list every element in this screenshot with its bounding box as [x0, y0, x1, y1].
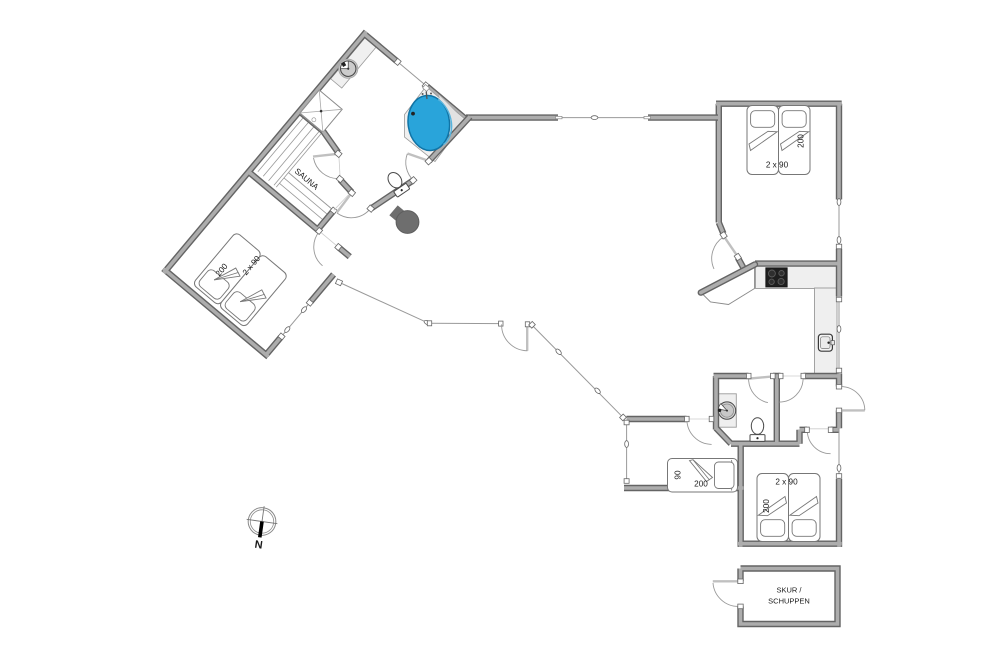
- svg-text:2 x 90: 2 x 90: [766, 161, 789, 170]
- svg-text:200: 200: [762, 499, 771, 513]
- svg-text:90: 90: [674, 470, 683, 480]
- svg-text:200: 200: [797, 134, 806, 148]
- svg-text:SCHUPPEN: SCHUPPEN: [768, 597, 810, 606]
- svg-text:200: 200: [694, 480, 708, 489]
- svg-text:SKUR /: SKUR /: [776, 586, 802, 595]
- svg-text:N: N: [254, 539, 264, 552]
- svg-text:2 x 90: 2 x 90: [775, 478, 798, 487]
